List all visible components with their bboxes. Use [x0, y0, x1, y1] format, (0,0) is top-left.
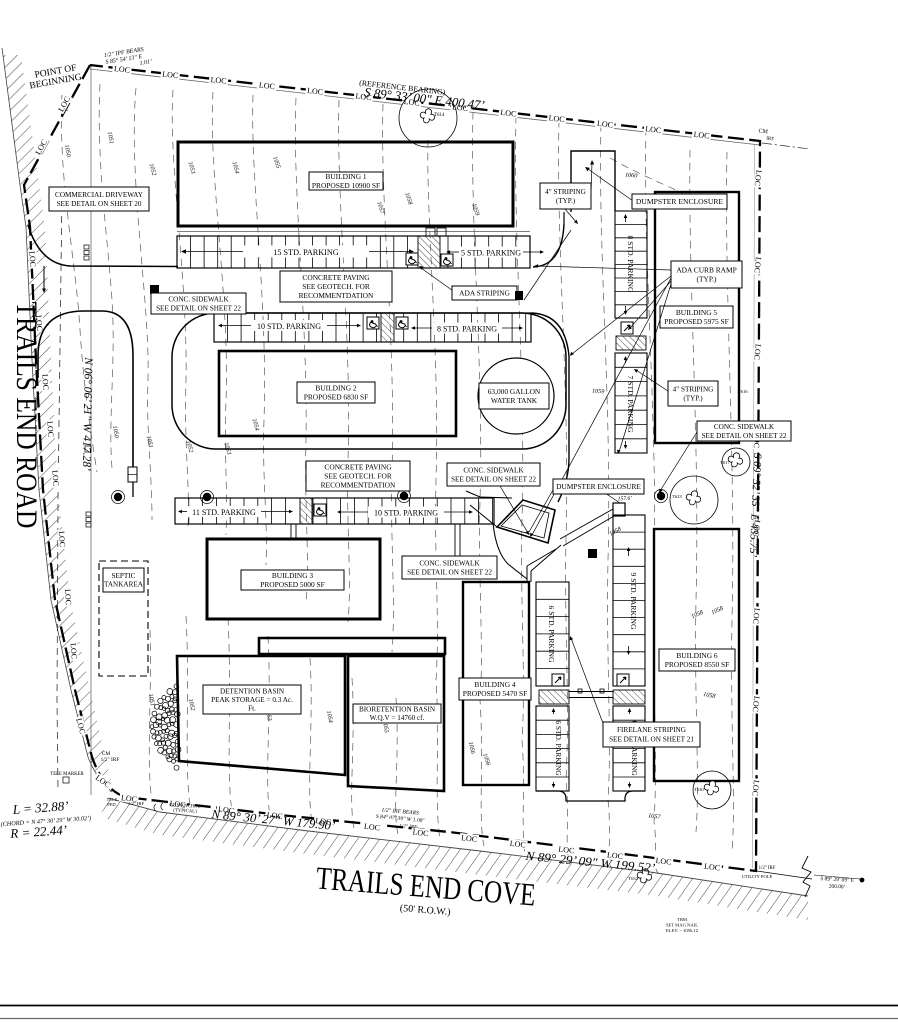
svg-text:WATER TANK: WATER TANK [491, 396, 538, 405]
svg-text:15 STD. PARKING: 15 STD. PARKING [273, 248, 339, 257]
svg-text:4" STRIPING: 4" STRIPING [545, 188, 586, 196]
svg-text:Ft.: Ft. [248, 705, 256, 713]
svg-text:LOC: LOC [509, 839, 526, 850]
svg-text:SEE DETAIL ON SHEET 20: SEE DETAIL ON SHEET 20 [57, 200, 142, 208]
svg-text:LOC: LOC [258, 80, 275, 91]
svg-text:4" STRIPING: 4" STRIPING [673, 385, 714, 393]
svg-text:6 STD. PARKING: 6 STD. PARKING [554, 720, 563, 776]
svg-text:LOC: LOC [752, 257, 763, 274]
svg-text:T623: T623 [672, 494, 682, 499]
svg-text:T614: T614 [434, 113, 445, 118]
svg-text:LOC: LOC [63, 589, 73, 606]
svg-text:LOC: LOC [57, 531, 67, 548]
svg-text:SEE DETAIL ON SHEET 22: SEE DETAIL ON SHEET 22 [156, 304, 241, 312]
svg-text:FIRELANE STRIPING: FIRELANE STRIPING [617, 726, 686, 734]
svg-text:PEAK STORAGE = 0.3 Ac.: PEAK STORAGE = 0.3 Ac. [211, 696, 293, 704]
svg-text:ADA STRIPING: ADA STRIPING [459, 289, 510, 298]
svg-text:RECOMMENTDATION: RECOMMENTDATION [299, 291, 374, 300]
svg-text:LOC: LOC [750, 780, 761, 797]
svg-text:LOC: LOC [461, 833, 478, 844]
svg-text:N 06° 06’ 21" W 417.28’: N 06° 06’ 21" W 417.28’ [80, 356, 94, 471]
svg-text:LOC: LOC [27, 251, 37, 268]
svg-text:RECOMMENTDATION: RECOMMENTDATION [321, 481, 396, 490]
svg-text:PROPOSED 10900 SF: PROPOSED 10900 SF [312, 181, 380, 190]
svg-text:10 STD. PARKING: 10 STD. PARKING [257, 322, 321, 331]
svg-text:9 STD. PARKING: 9 STD. PARKING [629, 573, 638, 630]
svg-text:LOC: LOC [597, 119, 614, 130]
svg-text:LOC: LOC [162, 70, 179, 81]
svg-text:8 STD. PARKING: 8 STD. PARKING [626, 236, 635, 293]
svg-text:TRAILS END ROAD: TRAILS END ROAD [10, 302, 43, 529]
svg-text:T617: T617 [720, 460, 730, 465]
svg-text:SEE GEOTECH. FOR: SEE GEOTECH. FOR [324, 472, 392, 481]
svg-text:LOC: LOC [45, 421, 55, 438]
svg-text:LOC: LOC [210, 75, 227, 86]
svg-text:LOC: LOC [751, 608, 762, 625]
svg-text:CONC. SIDEWALK: CONC. SIDEWALK [419, 559, 480, 567]
svg-text:(TYP.): (TYP.) [683, 394, 703, 402]
svg-text:T632: T632 [628, 876, 638, 881]
svg-text:T616: T616 [738, 389, 748, 394]
svg-text:DUMPSTER ENCLOSURE: DUMPSTER ENCLOSURE [636, 197, 723, 206]
svg-text:SEE DETAIL ON SHEET 22: SEE DETAIL ON SHEET 22 [702, 432, 787, 440]
svg-text:PROPOSED 8550 SF: PROPOSED 8550 SF [665, 660, 729, 669]
svg-text:COMMERCIAL DRIVEWAY: COMMERCIAL DRIVEWAY [55, 191, 144, 199]
svg-text:ELEV. ~ 1056.12: ELEV. ~ 1056.12 [666, 928, 699, 933]
svg-text:LOC: LOC [69, 643, 79, 660]
svg-text:PROPOSED 5000 SF: PROPOSED 5000 SF [260, 580, 324, 589]
svg-text:(TYP.): (TYP.) [697, 275, 717, 284]
svg-text:LOC: LOC [548, 113, 565, 124]
svg-text:LOC: LOC [693, 130, 710, 141]
svg-text:157.6’: 157.6’ [618, 496, 633, 503]
svg-text:SEE DETAIL ON SHEET 22: SEE DETAIL ON SHEET 22 [407, 568, 492, 576]
svg-text:SEPTIC: SEPTIC [112, 572, 136, 580]
svg-text:LOC: LOC [751, 696, 762, 713]
svg-text:6 STD. PARKING: 6 STD. PARKING [547, 606, 556, 663]
svg-text:(TYP.): (TYP.) [556, 197, 576, 205]
svg-text:TBM: TBM [677, 917, 687, 922]
svg-text:LOC: LOC [753, 170, 764, 187]
svg-text:SEE DETAIL ON SHEET 22: SEE DETAIL ON SHEET 22 [451, 475, 536, 483]
svg-text:CONC. SIDEWALK: CONC. SIDEWALK [714, 423, 775, 431]
svg-text:UTILITY POLE: UTILITY POLE [742, 874, 773, 879]
svg-text:CM: CM [758, 129, 769, 136]
svg-text:LOC: LOC [363, 822, 380, 833]
svg-text:LOC: LOC [307, 86, 324, 97]
svg-text:LOC: LOC [500, 108, 517, 119]
svg-text:T630: T630 [694, 787, 704, 792]
svg-text:5 STD. PARKING: 5 STD. PARKING [461, 249, 521, 258]
svg-text:DETENTION BASIN: DETENTION BASIN [220, 687, 285, 695]
svg-text:LOC: LOC [50, 470, 60, 487]
svg-text:LOC: LOC [655, 856, 672, 867]
svg-text:SET MAG NAIL: SET MAG NAIL [666, 923, 698, 928]
svg-text:LOC: LOC [114, 64, 131, 75]
svg-text:PROPOSED 6830 SF: PROPOSED 6830 SF [304, 392, 368, 401]
svg-text:TELE MARKER: TELE MARKER [50, 772, 84, 777]
svg-text:CONC. SIDEWALK: CONC. SIDEWALK [168, 295, 229, 303]
svg-text:BIORETENTION BASIN: BIORETENTION BASIN [359, 706, 436, 714]
svg-text:200.00’: 200.00’ [829, 884, 846, 891]
svg-text:PED.: PED. [107, 802, 116, 807]
svg-text:IRF: IRF [766, 137, 774, 143]
svg-text:DUMPSTER ENCLOSURE: DUMPSTER ENCLOSURE [556, 482, 641, 491]
svg-text:LOC: LOC [645, 124, 662, 135]
svg-text:1/2" IRF: 1/2" IRF [128, 801, 144, 806]
svg-text:1/2" IRF: 1/2" IRF [101, 757, 120, 763]
svg-text:LOC: LOC [752, 344, 763, 361]
svg-text:11 STD. PARKING: 11 STD. PARKING [192, 508, 256, 517]
svg-text:ADA CURB RAMP: ADA CURB RAMP [676, 265, 736, 274]
svg-text:1060: 1060 [625, 172, 639, 180]
svg-text:1059: 1059 [592, 388, 605, 396]
svg-text:10 STD. PARKING: 10 STD. PARKING [374, 509, 438, 518]
svg-text:W.Q.V = 14760 cf.: W.Q.V = 14760 cf. [370, 714, 425, 722]
svg-text:CONCRETE PAVING: CONCRETE PAVING [324, 463, 392, 472]
svg-text:SEE DETAIL ON SHEET 21: SEE DETAIL ON SHEET 21 [609, 736, 694, 744]
svg-text:SEE GEOTECH. FOR: SEE GEOTECH. FOR [302, 282, 370, 291]
svg-text:CONC. SIDEWALK: CONC. SIDEWALK [463, 466, 524, 474]
svg-text:CONCRETE PAVING: CONCRETE PAVING [302, 273, 370, 282]
svg-text:8 STD. PARKING: 8 STD. PARKING [437, 325, 497, 334]
svg-text:PROPOSED 5470 SF: PROPOSED 5470 SF [463, 689, 527, 698]
svg-text:1/2" IRF: 1/2" IRF [759, 866, 776, 871]
svg-text:PROPOSED 5975 SF: PROPOSED 5975 SF [664, 317, 728, 326]
svg-text:TANKAREA: TANKAREA [104, 581, 144, 589]
svg-text:LOC: LOC [704, 862, 721, 873]
